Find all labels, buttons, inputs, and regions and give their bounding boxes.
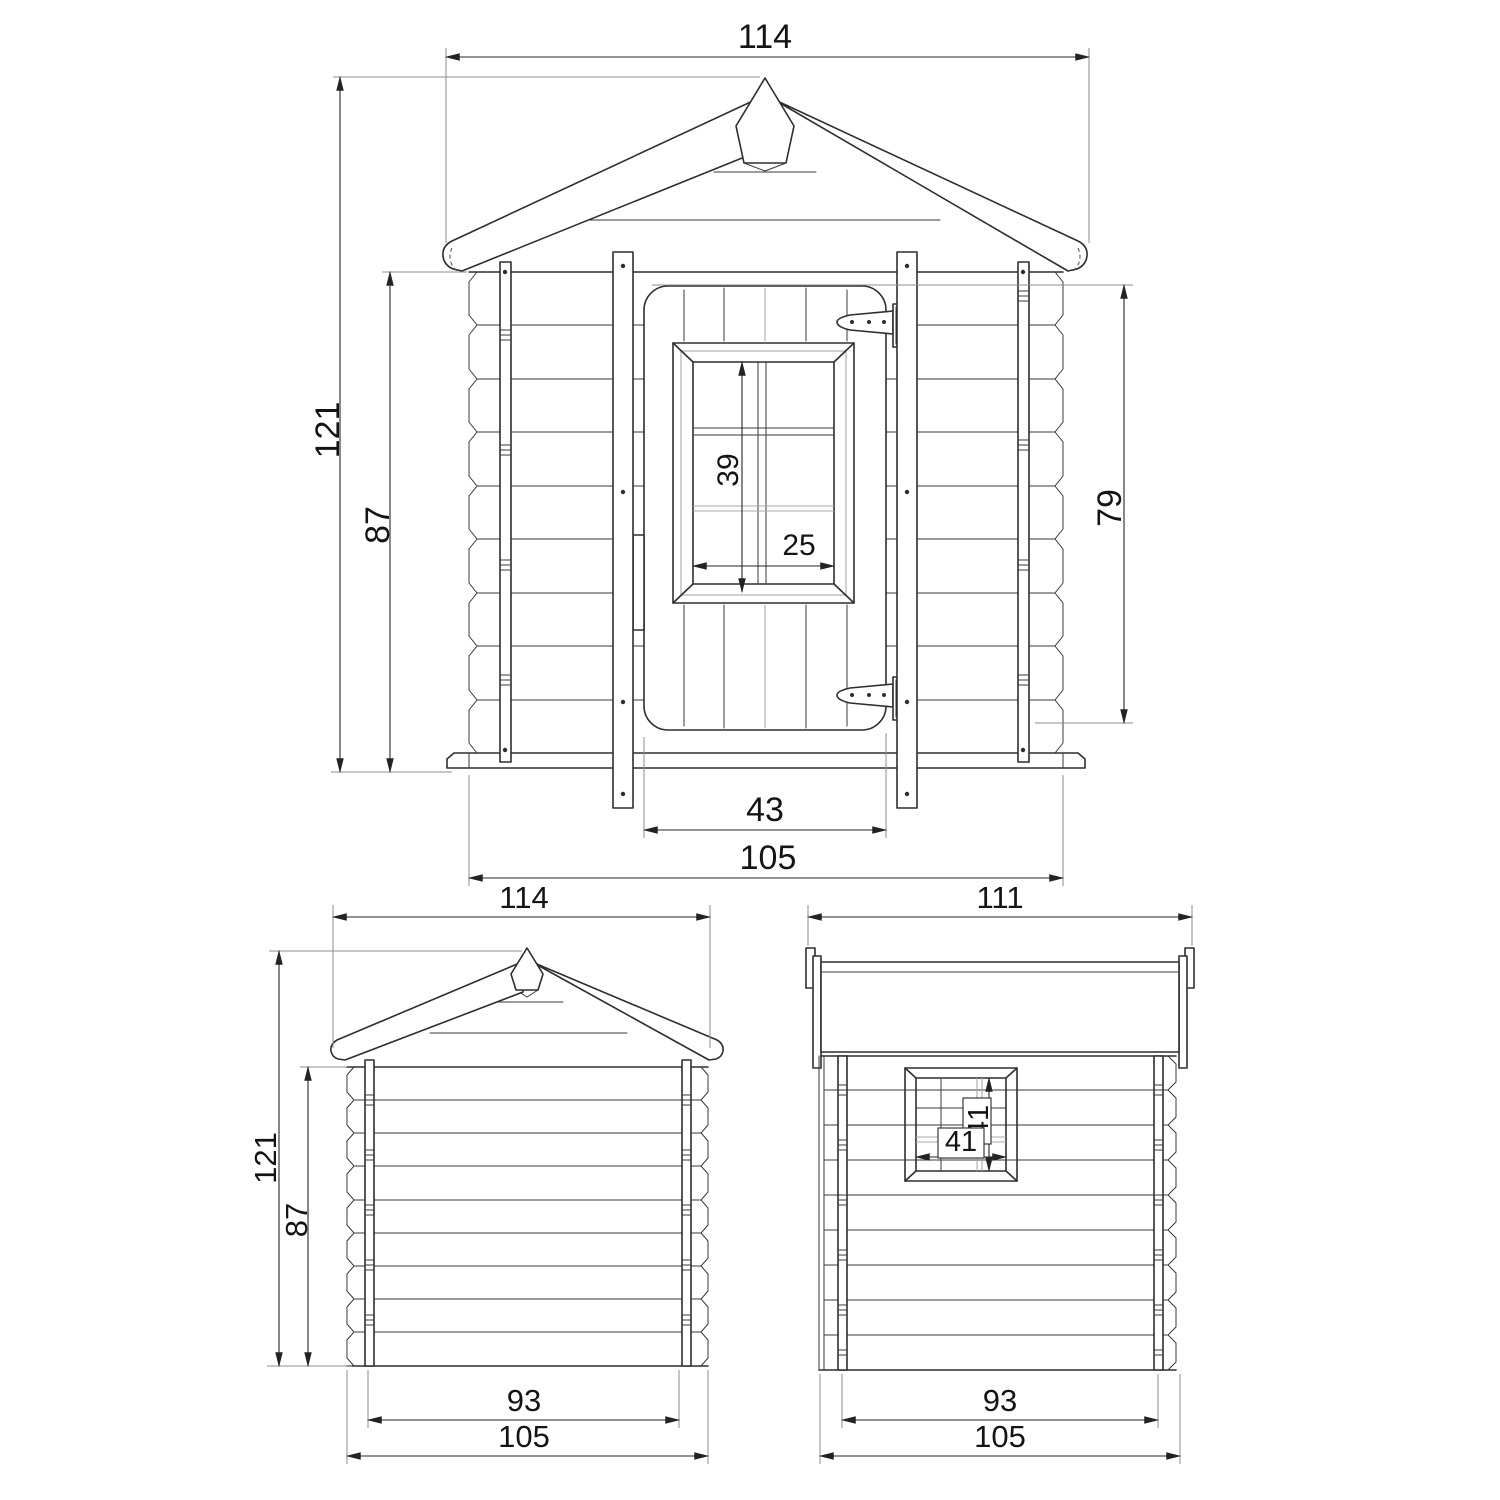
dim-label-front-window-width: 25 <box>782 529 815 562</box>
dim-label-rear-total-height: 121 <box>248 1132 283 1184</box>
side-wall-logs <box>819 1056 1176 1370</box>
front-base-board <box>447 753 1085 768</box>
side-corner-battens <box>838 1056 1163 1370</box>
side-roof <box>806 948 1194 1068</box>
dim-label-rear-roof-width: 114 <box>499 880 548 915</box>
rear-corner-battens <box>365 1060 691 1366</box>
dim-label-front-door-width: 43 <box>746 791 784 829</box>
rear-roof-finial <box>511 948 543 990</box>
dim-label-side-base-depth: 105 <box>974 1419 1026 1454</box>
dim-side-roof-depth: 111 <box>808 880 1192 946</box>
dim-front-wall-height: 87 <box>359 272 467 772</box>
dim-rear-total-height: 121 <box>248 951 522 1366</box>
dim-label-side-inner-base-depth: 93 <box>983 1383 1017 1418</box>
side-bargeboard-left <box>813 956 821 1068</box>
rear-dimensions: 114 121 87 93 <box>248 880 710 1464</box>
roof-finial <box>736 78 794 163</box>
front-roof <box>443 78 1087 272</box>
technical-drawing-page: 114 121 87 79 39 <box>0 0 1500 1500</box>
dim-label-rear-base-width: 105 <box>498 1419 550 1454</box>
door <box>633 286 914 730</box>
dim-label-front-total-height: 121 <box>309 402 347 459</box>
rear-wall-logs <box>347 1067 708 1366</box>
dim-label-side-window-width: 41 <box>945 1126 977 1158</box>
side-bargeboard-right <box>1179 956 1187 1068</box>
rear-view: 114 121 87 93 <box>248 880 723 1464</box>
dim-front-door-width: 43 <box>644 733 886 838</box>
technical-drawing-canvas: 114 121 87 79 39 <box>0 0 1500 1500</box>
door-latch-block <box>633 535 644 630</box>
dim-rear-wall-height: 87 <box>279 1067 346 1366</box>
side-roof-slab <box>821 962 1179 1052</box>
dim-label-front-base-width: 105 <box>740 839 797 877</box>
dim-label-front-wall-height: 87 <box>359 506 397 544</box>
front-view: 114 121 87 79 39 <box>309 18 1133 886</box>
dim-label-side-roof-depth: 111 <box>976 880 1023 915</box>
dim-label-front-door-opening-height: 79 <box>1091 489 1129 527</box>
dim-label-front-roof-width: 114 <box>738 18 792 56</box>
side-view: 111 41 41 93 105 <box>806 880 1194 1464</box>
rear-roof <box>331 948 723 1060</box>
dim-label-rear-wall-height: 87 <box>279 1203 314 1237</box>
dim-label-rear-inner-base-width: 93 <box>507 1383 541 1418</box>
dim-label-front-window-height: 39 <box>712 453 745 486</box>
